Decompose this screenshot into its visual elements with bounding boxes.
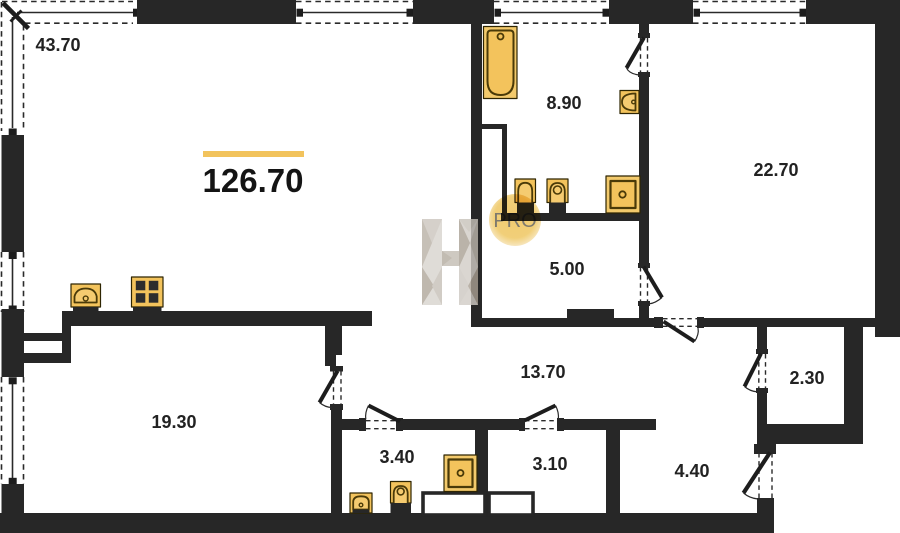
svg-text:22.70: 22.70: [753, 160, 798, 180]
svg-text:3.10: 3.10: [532, 454, 567, 474]
svg-text:13.70: 13.70: [520, 362, 565, 382]
svg-text:5.00: 5.00: [549, 259, 584, 279]
svg-text:8.90: 8.90: [546, 93, 581, 113]
svg-text:19.30: 19.30: [151, 412, 196, 432]
svg-text:4.40: 4.40: [674, 461, 709, 481]
svg-text:43.70: 43.70: [35, 35, 80, 55]
svg-text:2.30: 2.30: [789, 368, 824, 388]
svg-text:PRO: PRO: [493, 210, 536, 232]
svg-text:3.40: 3.40: [379, 447, 414, 467]
svg-text:126.70: 126.70: [203, 162, 304, 199]
